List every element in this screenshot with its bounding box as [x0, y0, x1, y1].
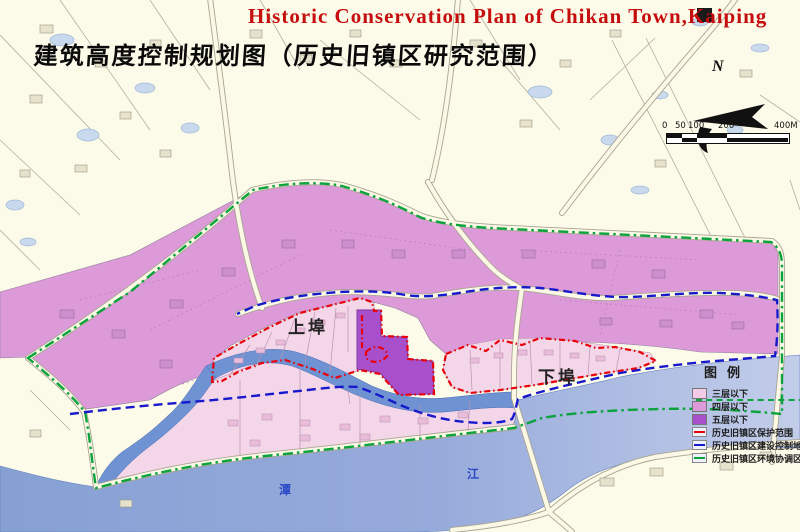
legend-label: 五层以下: [712, 413, 748, 426]
swatch-four-floors: [692, 401, 707, 412]
label-lower-town: 下埠: [538, 363, 578, 388]
plan-map-canvas: [0, 0, 800, 532]
legend-label: 历史旧镇区建设控制地带: [712, 439, 800, 452]
label-river-char2: 江: [467, 465, 479, 482]
scale-tick: 200: [718, 121, 734, 131]
scale-tick: 0: [662, 121, 667, 131]
swatch-five-floors: [692, 414, 707, 425]
legend-item-five-floors: 五层以下: [692, 413, 798, 425]
label-river-char1: 潭: [279, 481, 291, 498]
page-title-en: Historic Conservation Plan of Chikan Tow…: [248, 4, 767, 29]
legend-title: 图例: [704, 362, 798, 381]
legend-item-four-floors: 四层以下: [692, 400, 798, 412]
legend-label: 三层以下: [712, 387, 748, 400]
swatch-three-floors: [692, 388, 707, 399]
scale-tick: 50: [675, 121, 686, 131]
legend-label: 历史旧镇区保护范围: [712, 426, 793, 439]
coordination-line-through-legend: [696, 399, 800, 401]
page-title-zh: 建筑高度控制规划图（历史旧镇区研究范围）: [33, 36, 555, 71]
north-label: N: [712, 58, 724, 76]
legend: 图例 三层以下 四层以下 五层以下 历史旧镇区保护范围 历史旧镇区建设控制地带 …: [692, 362, 798, 465]
swatch-protection-line: [692, 427, 707, 437]
legend-item-protection: 历史旧镇区保护范围: [692, 426, 798, 438]
legend-label: 四层以下: [712, 400, 748, 413]
map-page: Historic Conservation Plan of Chikan Tow…: [0, 0, 800, 532]
scale-bar-ticks: 0 50 100 200 400M: [662, 121, 794, 131]
scale-bar: [666, 133, 790, 144]
legend-item-three-floors: 三层以下: [692, 387, 798, 399]
legend-item-control: 历史旧镇区建设控制地带: [692, 439, 798, 451]
legend-item-coordination: 历史旧镇区环境协调区: [692, 452, 798, 464]
scale-tick: 100: [688, 121, 704, 131]
scale-tick: 400M: [774, 121, 798, 131]
label-upper-town: 上埠: [288, 313, 328, 338]
legend-label: 历史旧镇区环境协调区: [712, 452, 800, 465]
swatch-coordination-line: [692, 453, 707, 463]
swatch-control-line: [692, 440, 707, 450]
